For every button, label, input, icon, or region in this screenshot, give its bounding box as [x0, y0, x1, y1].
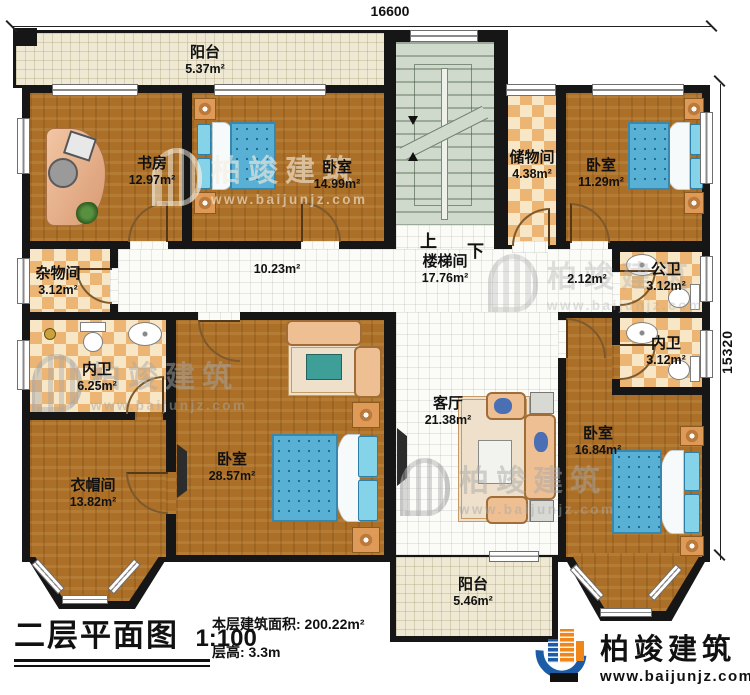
- room-label-public-bath: 公卫 3.12m²: [646, 262, 686, 293]
- brand-logo-icon: [534, 623, 592, 687]
- bed-quilt: [612, 450, 662, 534]
- stair-window: [410, 30, 478, 42]
- nightstand: [194, 98, 216, 120]
- room-label-study: 书房 12.97m²: [129, 156, 176, 187]
- toilet-tank: [80, 322, 106, 332]
- ensuite-w-window: [17, 340, 30, 390]
- brand-logo: 柏竣建筑 www.baijunjz.com: [534, 620, 748, 690]
- room-label-cloakroom: 衣帽间 13.82m²: [70, 478, 117, 509]
- door-gap: [130, 241, 168, 249]
- bed-pillow: [684, 494, 700, 533]
- toilet-bowl: [83, 332, 103, 352]
- bay-sw-window: [62, 595, 108, 604]
- logo-building-orange: [560, 629, 574, 663]
- stair-up-label: 上: [420, 227, 437, 252]
- room-label-ensuite-w: 内卫 6.25m²: [77, 362, 117, 393]
- bed-quilt: [230, 122, 276, 190]
- dimension-height: 15320: [719, 330, 735, 374]
- room-label-bedroom-master: 卧室 28.57m²: [209, 452, 256, 483]
- stair-arrow-up: [408, 152, 418, 161]
- sink: [128, 322, 162, 346]
- office-chair: [48, 158, 78, 188]
- floor-height-note: 层高: 3.3m: [212, 642, 280, 662]
- title-underline: [14, 659, 210, 662]
- brand-website: www.baijunjz.com: [600, 668, 750, 685]
- room-label-stairwell: 楼梯间 17.76m²: [422, 254, 469, 285]
- door-gap: [198, 312, 240, 320]
- coffee-table: [478, 440, 512, 484]
- bedroom-ne-window: [592, 84, 684, 96]
- dimension-line-right: [720, 84, 721, 560]
- logo-base: [550, 673, 578, 682]
- door-gap: [301, 241, 339, 249]
- room-label-bedroom-n: 卧室 14.99m²: [314, 160, 361, 191]
- coffee-table: [306, 354, 342, 380]
- storage-window: [506, 84, 556, 96]
- nightstand: [352, 402, 380, 428]
- room-label-balcony-top: 阳台 5.37m²: [185, 45, 225, 76]
- bedroom-ne-window-right: [700, 112, 713, 184]
- balcony-door: [489, 551, 539, 562]
- tv: [177, 444, 187, 498]
- room-label-bedroom-ne: 卧室 11.29m²: [578, 158, 624, 189]
- sofa: [524, 414, 556, 500]
- nightstand: [684, 192, 704, 214]
- brand-name: 柏竣建筑: [600, 626, 750, 668]
- room-label-sundry: 杂物间 3.12m²: [35, 266, 80, 297]
- room-label-bedroom-se: 卧室 16.84m²: [575, 426, 622, 457]
- tv: [397, 428, 407, 486]
- logo-building-orange-s: [576, 641, 584, 661]
- title-underline2: [14, 665, 210, 667]
- door-gap: [612, 345, 620, 379]
- shower-head: [44, 328, 56, 340]
- sofa: [286, 320, 362, 346]
- bed-pillow: [197, 158, 211, 189]
- bed-pillow: [197, 124, 211, 155]
- dimension-line-top: [12, 26, 712, 27]
- room-label-hallway: 10.23m²: [254, 262, 301, 276]
- floor-area-note: 本层建筑面积: 200.22m²: [212, 614, 364, 634]
- bed-pillow: [684, 452, 700, 491]
- stair-stringer: [441, 68, 448, 220]
- toilet-tank: [690, 356, 700, 382]
- room-label-ensuite-e: 内卫 3.12m²: [646, 336, 686, 367]
- sofa: [354, 346, 382, 398]
- nightstand: [194, 192, 216, 214]
- bedroom-n-window: [214, 84, 326, 96]
- bed-pillow: [358, 480, 378, 521]
- door-gap: [612, 272, 620, 306]
- dimension-width: 16600: [371, 3, 410, 19]
- study-window-left: [17, 118, 30, 174]
- nightstand: [680, 426, 704, 446]
- room-label-storage: 储物间 4.38m²: [509, 150, 554, 181]
- stair-down-label: 下: [467, 237, 484, 262]
- bed-quilt: [272, 434, 338, 522]
- toilet-tank: [690, 284, 700, 310]
- room-label-living: 客厅 21.38m²: [425, 396, 472, 427]
- public-bath-window: [700, 256, 713, 302]
- room-label-hallway-e: 2.12m²: [567, 272, 607, 286]
- side-table: [530, 392, 554, 414]
- sofa: [486, 496, 528, 524]
- bed-pillow: [358, 436, 378, 477]
- bay-se-window: [600, 608, 652, 617]
- study-window: [52, 84, 138, 96]
- bed-quilt: [628, 122, 670, 190]
- person-figure: [534, 432, 548, 452]
- nightstand: [352, 527, 380, 553]
- stair-arrow-down: [408, 116, 418, 125]
- ensuite-e-window: [700, 330, 713, 378]
- room-label-balcony-bottom: 阳台 5.46m²: [453, 577, 493, 608]
- logo-building-blue: [548, 639, 558, 663]
- page-title: 二层平面图: [14, 618, 179, 653]
- person-figure: [494, 398, 512, 414]
- sundry-window: [17, 258, 30, 304]
- floor-plan: 16600 15320: [0, 0, 750, 695]
- side-table: [530, 500, 554, 522]
- nightstand: [680, 536, 704, 556]
- hallway-floor: [118, 249, 612, 312]
- door-gap: [558, 320, 566, 358]
